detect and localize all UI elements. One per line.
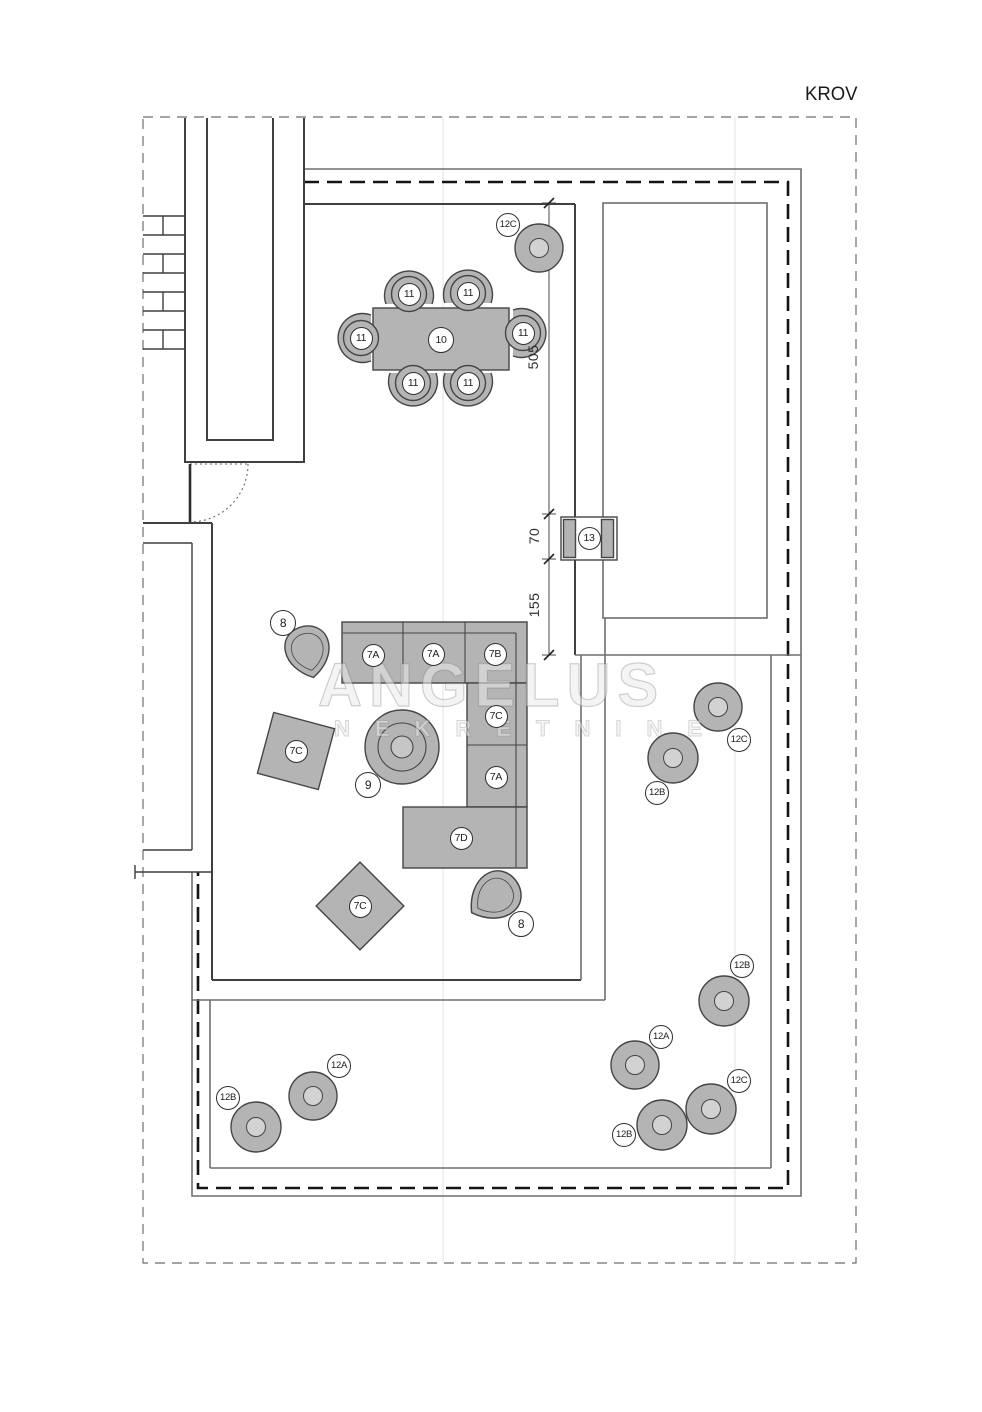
- label-12b: 12B: [612, 1123, 636, 1147]
- label-8: 8: [508, 911, 534, 937]
- label-11: 11: [398, 283, 421, 306]
- label-12c: 12C: [727, 728, 751, 752]
- label-7a: 7A: [422, 643, 445, 666]
- label-7c: 7C: [485, 705, 508, 728]
- label-12a: 12A: [649, 1025, 673, 1049]
- label-11: 11: [512, 322, 535, 345]
- label-11: 11: [350, 327, 373, 350]
- label-7c: 7C: [285, 740, 308, 763]
- labels-layer: 12C111111101111111387A7A7B7C7C97A7D7C812…: [0, 0, 982, 1412]
- label-11: 11: [402, 372, 425, 395]
- label-12b: 12B: [730, 954, 754, 978]
- label-11: 11: [457, 282, 480, 305]
- label-12a: 12A: [327, 1054, 351, 1078]
- label-13: 13: [578, 527, 601, 550]
- label-10: 10: [428, 327, 454, 353]
- label-7c: 7C: [349, 895, 372, 918]
- label-12c: 12C: [727, 1069, 751, 1093]
- label-7a: 7A: [362, 644, 385, 667]
- label-7a: 7A: [485, 766, 508, 789]
- dimension-505: 505: [525, 345, 541, 370]
- label-9: 9: [355, 772, 381, 798]
- label-7d: 7D: [450, 827, 473, 850]
- floor-plan-page: ANGELUS NEKRETNINE KROV 12C1111111011111…: [0, 0, 982, 1412]
- label-11: 11: [457, 372, 480, 395]
- label-8: 8: [270, 610, 296, 636]
- dimension-155: 155: [526, 593, 542, 618]
- dimension-70: 70: [526, 528, 542, 545]
- label-7b: 7B: [484, 643, 507, 666]
- label-12b: 12B: [645, 781, 669, 805]
- label-12c: 12C: [496, 213, 520, 237]
- label-12b: 12B: [216, 1086, 240, 1110]
